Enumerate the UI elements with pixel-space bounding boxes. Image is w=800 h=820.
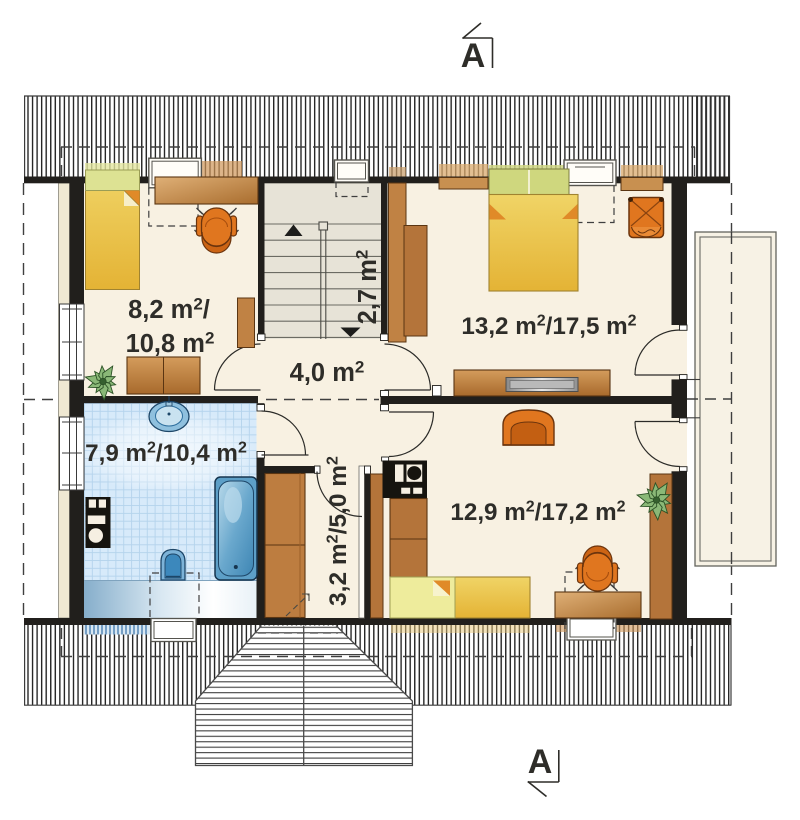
svg-text:10,8 m2: 10,8 m2 xyxy=(126,329,215,359)
svg-text:3,2 m2/5,0 m2: 3,2 m2/5,0 m2 xyxy=(325,456,353,606)
svg-text:7,9 m2/10,4 m2: 7,9 m2/10,4 m2 xyxy=(85,440,247,468)
svg-text:12,9 m2/17,2 m2: 12,9 m2/17,2 m2 xyxy=(450,499,625,527)
svg-text:4,0 m2: 4,0 m2 xyxy=(290,358,365,388)
svg-text:A: A xyxy=(528,743,553,781)
svg-text:A: A xyxy=(461,37,486,75)
svg-text:13,2 m2/17,5 m2: 13,2 m2/17,5 m2 xyxy=(461,313,636,341)
svg-text:2,7 m2: 2,7 m2 xyxy=(353,250,383,325)
